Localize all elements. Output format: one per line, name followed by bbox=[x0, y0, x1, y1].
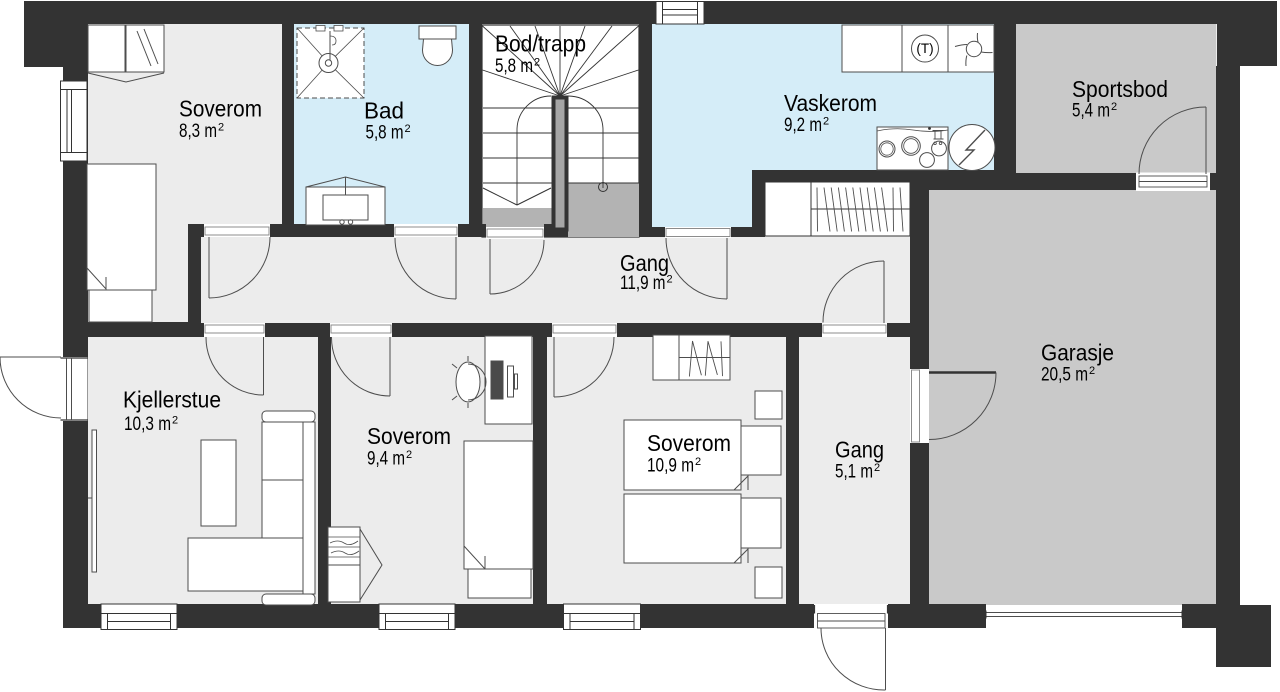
svg-text:5,1 m: 5,1 m bbox=[835, 462, 873, 483]
svg-text:2: 2 bbox=[406, 449, 412, 461]
svg-text:2: 2 bbox=[695, 456, 701, 468]
svg-text:11,9 m: 11,9 m bbox=[620, 273, 666, 294]
svg-text:5,8 m: 5,8 m bbox=[495, 56, 533, 77]
svg-text:Kjellerstue: Kjellerstue bbox=[123, 387, 221, 413]
svg-text:2: 2 bbox=[405, 123, 411, 135]
svg-text:Bod/trapp: Bod/trapp bbox=[495, 31, 586, 57]
svg-text:2: 2 bbox=[667, 274, 673, 286]
svg-text:Garasje: Garasje bbox=[1041, 340, 1114, 366]
svg-text:2: 2 bbox=[172, 415, 178, 427]
svg-text:2: 2 bbox=[823, 116, 829, 128]
svg-text:20,5 m: 20,5 m bbox=[1041, 365, 1088, 386]
svg-text:2: 2 bbox=[218, 122, 224, 134]
svg-text:Soverom: Soverom bbox=[367, 423, 451, 449]
svg-text:(T): (T) bbox=[916, 41, 933, 56]
svg-text:Soverom: Soverom bbox=[647, 430, 731, 456]
svg-text:10,9 m: 10,9 m bbox=[647, 456, 694, 477]
svg-text:10,3 m: 10,3 m bbox=[124, 414, 171, 435]
svg-text:9,2 m: 9,2 m bbox=[784, 115, 822, 136]
svg-text:Gang: Gang bbox=[835, 437, 884, 463]
svg-text:2: 2 bbox=[1089, 365, 1095, 377]
svg-text:5,4 m: 5,4 m bbox=[1072, 101, 1110, 122]
svg-text:2: 2 bbox=[534, 57, 540, 69]
svg-text:9,4 m: 9,4 m bbox=[367, 449, 405, 470]
svg-text:Bad: Bad bbox=[364, 98, 404, 124]
svg-text:8,3 m: 8,3 m bbox=[179, 121, 217, 142]
svg-text:2: 2 bbox=[1111, 101, 1117, 113]
svg-text:Sportsbod: Sportsbod bbox=[1072, 76, 1168, 102]
svg-text:Vaskerom: Vaskerom bbox=[784, 90, 877, 116]
svg-text:2: 2 bbox=[874, 462, 880, 474]
svg-text:Soverom: Soverom bbox=[179, 96, 262, 122]
svg-text:5,8 m: 5,8 m bbox=[366, 123, 404, 144]
